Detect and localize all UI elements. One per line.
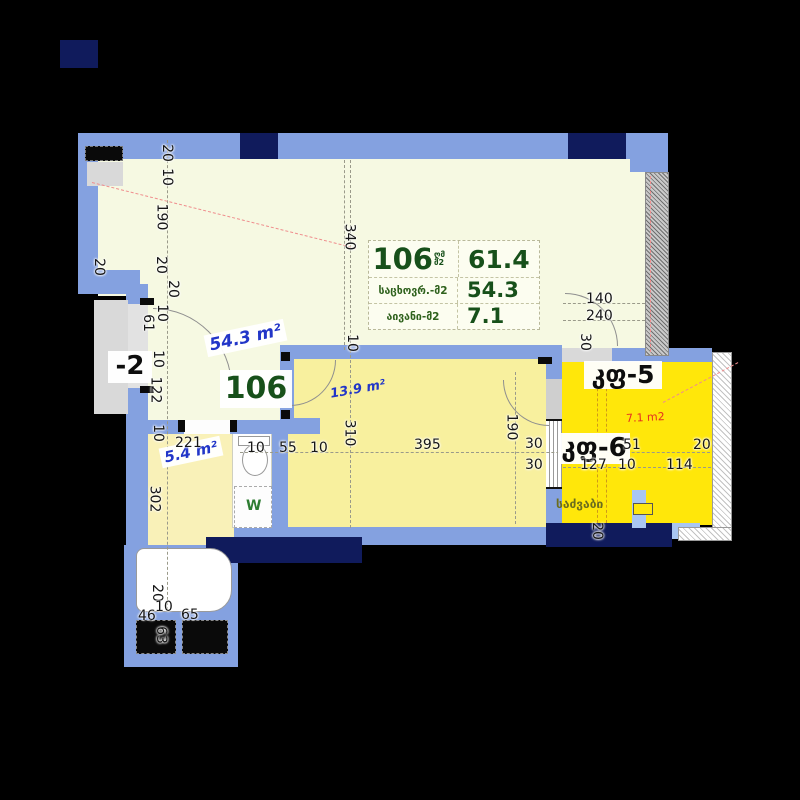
dim-label: 10 bbox=[151, 424, 165, 442]
jamb-tick bbox=[281, 352, 290, 361]
dim-label: 190 bbox=[504, 414, 518, 441]
dim-label: 30 bbox=[525, 458, 543, 472]
dim-label: 20 bbox=[166, 280, 180, 298]
jamb-tick bbox=[230, 420, 237, 432]
dim-label: 20 bbox=[590, 522, 604, 540]
living-area-label: საცხოვრ.-მ2 bbox=[369, 278, 458, 303]
dim-label: 114 bbox=[666, 458, 693, 472]
wall-left-bath bbox=[126, 425, 148, 551]
column-top-2 bbox=[568, 133, 626, 159]
info-table-row-3: აივანი-მ2 7.1 bbox=[369, 304, 539, 329]
dim-label: 127 bbox=[580, 458, 607, 472]
unit-tag: 106 bbox=[220, 370, 292, 408]
dim-label: 140 bbox=[586, 292, 613, 306]
dim-label: 55 bbox=[279, 441, 297, 455]
dim-label: 30 bbox=[578, 333, 592, 351]
room-label-storage: საძვაბი bbox=[556, 497, 603, 511]
dim-label: 10 bbox=[247, 441, 265, 455]
shaft-bottom-2 bbox=[182, 620, 228, 654]
unit-number: 106 bbox=[369, 245, 433, 274]
living-area-value: 54.3 bbox=[458, 280, 539, 301]
wall-hall-bedroom-step bbox=[280, 418, 320, 434]
dim-label: 10 bbox=[155, 304, 169, 322]
dim-label: 10 bbox=[155, 600, 173, 614]
dim-line bbox=[344, 160, 345, 350]
info-table: 106 ღმ მ2 61.4 საცხოვრ.-მ2 54.3 აივანი-მ… bbox=[368, 240, 540, 330]
dim-label: 20 bbox=[92, 258, 106, 276]
glazing-balcony-bottom bbox=[678, 527, 732, 541]
floor-plan: 106 ღმ მ2 61.4 საცხოვრ.-მ2 54.3 აივანი-მ… bbox=[0, 0, 800, 800]
door-opening-bath bbox=[184, 420, 230, 434]
dim-label: 240 bbox=[586, 309, 613, 323]
dim-label: 61 bbox=[141, 314, 155, 332]
room-label-balcony5: კფ-5 bbox=[584, 361, 662, 389]
dim-label: 340 bbox=[342, 224, 356, 251]
dim-label: 122 bbox=[148, 377, 162, 404]
dim-label: 65 bbox=[181, 608, 199, 622]
wall-living-bedroom bbox=[280, 345, 562, 359]
dim-label: 190 bbox=[154, 204, 168, 231]
dim-label: 46 bbox=[138, 609, 156, 623]
info-table-row-1: 106 ღმ მ2 61.4 bbox=[369, 241, 539, 278]
dim-label: 221 bbox=[175, 436, 202, 450]
jamb-tick bbox=[281, 410, 290, 419]
room-label-lobby: -2 bbox=[108, 351, 152, 383]
dim-label: 10 bbox=[160, 168, 174, 186]
glazing-balcony-right bbox=[712, 352, 732, 536]
dim-label: 310 bbox=[342, 420, 356, 447]
dim-label: 10 bbox=[151, 350, 165, 368]
dim-label: 30 bbox=[525, 437, 543, 451]
jamb-tick bbox=[538, 357, 552, 364]
dim-label: 302 bbox=[147, 486, 161, 513]
axis-red-vertical bbox=[650, 176, 651, 352]
shaft-top-left bbox=[85, 146, 123, 161]
total-area-value: 61.4 bbox=[459, 247, 539, 272]
info-table-row-2: საცხოვრ.-მ2 54.3 bbox=[369, 278, 539, 304]
balcony-sink bbox=[633, 503, 653, 515]
balcony-area-value: 7.1 bbox=[458, 306, 539, 327]
column-top-1 bbox=[240, 133, 278, 159]
unit-number-suffix: ღმ მ2 bbox=[433, 241, 459, 277]
jamb-tick bbox=[178, 420, 185, 432]
column-outside bbox=[60, 40, 98, 68]
dim-label: 20 bbox=[160, 144, 174, 162]
dim-label: 10 bbox=[345, 334, 359, 352]
bathtub bbox=[136, 548, 232, 612]
area-label-balcony: 7.1 m2 bbox=[626, 410, 665, 425]
washer-label: W bbox=[246, 498, 261, 514]
wall-top-right-corner bbox=[630, 133, 668, 172]
dim-label: 20 bbox=[693, 438, 711, 452]
dim-label: 20 bbox=[154, 256, 168, 274]
jamb-tick bbox=[140, 298, 154, 305]
dim-label: 395 bbox=[414, 438, 441, 452]
dim-label: 10 bbox=[618, 458, 636, 472]
bar-balcony-bottom bbox=[546, 523, 672, 547]
dim-label: 63 bbox=[154, 626, 168, 644]
dim-label: 10 bbox=[310, 441, 328, 455]
dim-label: 51 bbox=[623, 438, 641, 452]
balcony-area-label: აივანი-მ2 bbox=[369, 304, 458, 329]
glazing-right bbox=[645, 172, 669, 356]
